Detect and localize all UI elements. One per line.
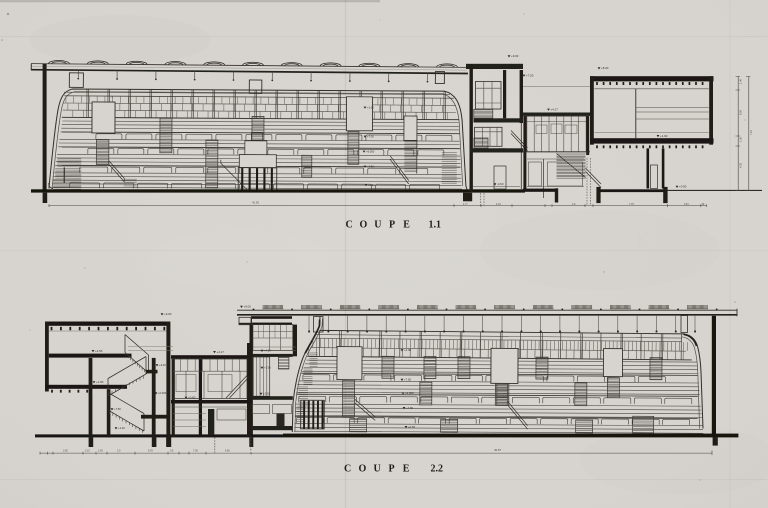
svg-text:+1.00: +1.00 — [367, 105, 374, 109]
svg-text:E: E — [403, 464, 410, 475]
svg-text:O: O — [360, 219, 368, 230]
svg-text:+4.50: +4.50 — [95, 349, 103, 353]
svg-text:E: E — [403, 219, 410, 230]
svg-text:3.50: 3.50 — [63, 450, 68, 453]
svg-text:+7.50: +7.50 — [114, 407, 121, 411]
svg-text:+0.60: +0.60 — [408, 425, 416, 429]
svg-text:+7.50: +7.50 — [404, 378, 412, 382]
svg-text:1.90: 1.90 — [98, 450, 103, 453]
svg-text:1.40: 1.40 — [739, 78, 743, 84]
svg-text:1.77: 1.77 — [463, 203, 468, 206]
svg-text:U: U — [374, 464, 381, 475]
svg-text:+0.60: +0.60 — [368, 183, 375, 187]
svg-text:O: O — [359, 464, 367, 475]
svg-text:+4.17: +4.17 — [217, 350, 225, 354]
svg-text:+2.00: +2.00 — [263, 392, 270, 396]
svg-text:+1.50: +1.50 — [96, 380, 104, 384]
svg-text:+1.40: +1.40 — [118, 426, 125, 430]
svg-text:+3.00: +3.00 — [159, 363, 166, 367]
svg-text:-0.60: -0.60 — [497, 182, 504, 186]
svg-text:3.61: 3.61 — [684, 203, 689, 206]
svg-text:+0.90: +0.90 — [679, 185, 687, 189]
svg-text:4.35: 4.35 — [739, 162, 743, 168]
svg-text:+3.00: +3.00 — [498, 118, 506, 122]
svg-text:+8.00: +8.00 — [601, 66, 609, 70]
svg-text:+6.000: +6.000 — [366, 149, 375, 153]
svg-text:U: U — [374, 219, 381, 230]
svg-text:+9.00: +9.00 — [511, 54, 519, 58]
svg-text:+7.80: +7.80 — [406, 406, 414, 410]
svg-text:+9.00: +9.00 — [164, 312, 172, 316]
svg-text:+9.00: +9.00 — [244, 305, 252, 309]
svg-text:2.2: 2.2 — [431, 464, 444, 475]
svg-text:45.87: 45.87 — [494, 448, 501, 452]
svg-text:6.00: 6.00 — [739, 109, 743, 115]
svg-text:P: P — [389, 464, 395, 475]
svg-text:7.75: 7.75 — [629, 203, 634, 206]
svg-text:+4.17: +4.17 — [551, 107, 559, 111]
svg-text:+7.80: +7.80 — [367, 164, 374, 168]
svg-text:+0.000: +0.000 — [497, 147, 506, 151]
svg-text:2.15: 2.15 — [85, 450, 90, 453]
svg-text:4.10: 4.10 — [496, 203, 501, 206]
svg-text:1.30: 1.30 — [739, 136, 743, 142]
svg-text:5.78: 5.78 — [148, 450, 153, 453]
svg-text:+0.80: +0.80 — [188, 396, 196, 400]
svg-text:41.92: 41.92 — [252, 200, 259, 204]
svg-text:+4.03: +4.03 — [264, 349, 271, 353]
svg-text:C: C — [346, 219, 353, 230]
svg-text:+0.000: +0.000 — [158, 391, 167, 395]
svg-text:+7.00: +7.00 — [367, 134, 374, 138]
svg-text:1.1: 1.1 — [429, 219, 442, 230]
svg-text:+7.50: +7.50 — [526, 73, 534, 77]
svg-text:+1.90: +1.90 — [660, 134, 668, 138]
svg-text:7.00: 7.00 — [193, 450, 198, 453]
svg-text:P: P — [389, 219, 395, 230]
svg-text:+6.000: +6.000 — [405, 391, 414, 395]
svg-text:6.60: 6.60 — [225, 450, 230, 453]
svg-text:C: C — [344, 464, 351, 475]
svg-text:+4.00: +4.00 — [404, 348, 412, 352]
svg-text:+3.00: +3.00 — [264, 366, 271, 370]
svg-text:7.10: 7.10 — [749, 129, 753, 135]
